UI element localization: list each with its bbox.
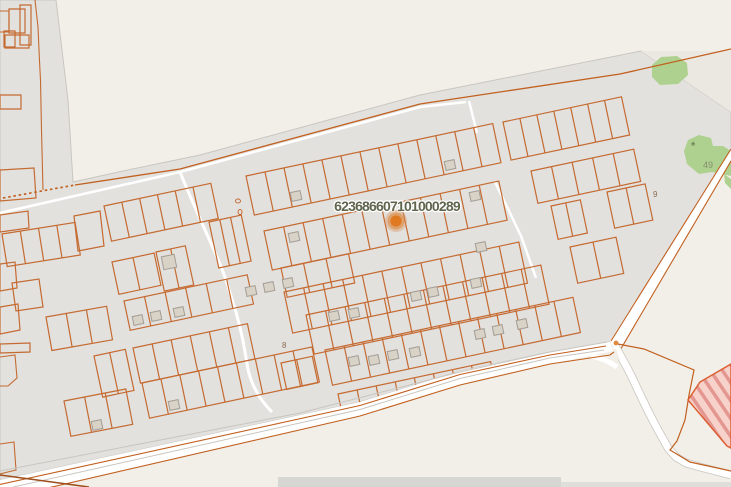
svg-text:8: 8 xyxy=(282,341,287,350)
svg-text:9: 9 xyxy=(653,190,658,199)
svg-text:49: 49 xyxy=(703,160,713,170)
